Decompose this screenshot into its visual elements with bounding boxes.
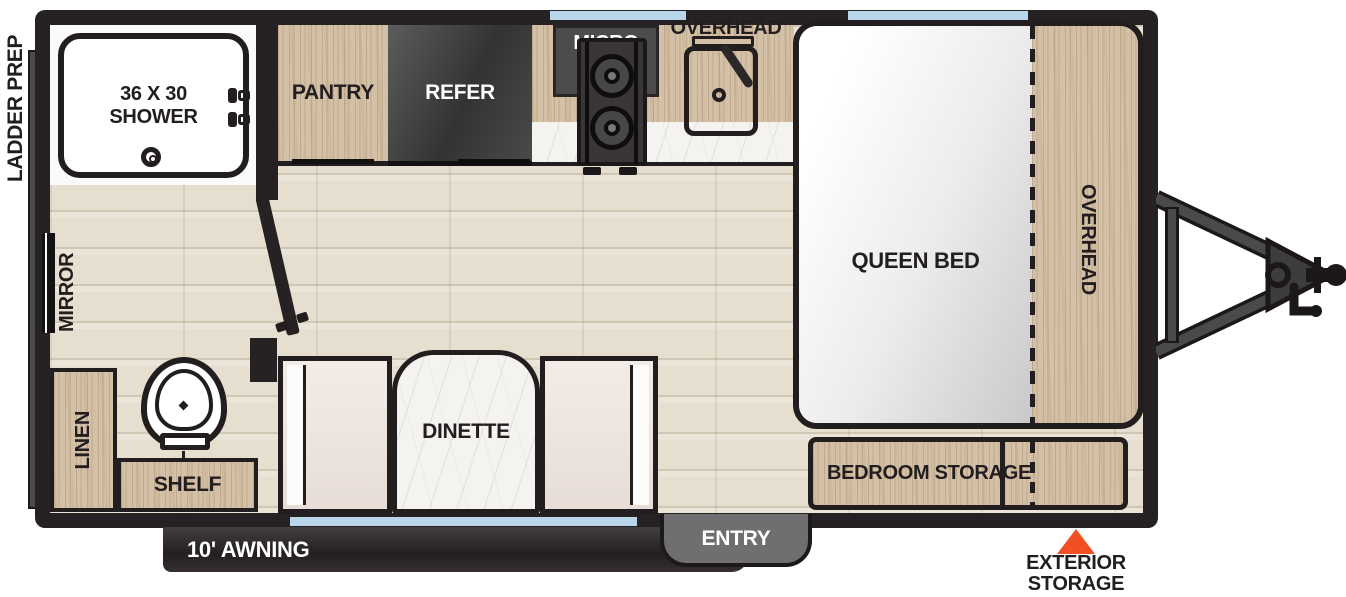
dinette-bench-left	[278, 356, 392, 514]
linen-cabinet: LINEN	[50, 368, 117, 512]
refer-label: REFER	[425, 81, 495, 105]
shower-valve-icon	[238, 90, 250, 101]
shelf-label: SHELF	[154, 473, 221, 497]
shelf-cabinet: SHELF	[117, 458, 258, 512]
floorplan-canvas: LADDER PREP 36 X 30 SHOWER MIRROR LINEN …	[0, 0, 1346, 597]
bench-cushion-strip	[630, 365, 649, 505]
bedroom-storage-label: BEDROOM STORAGE	[815, 462, 1043, 485]
refer-handle	[458, 159, 530, 165]
shower-valve-icon	[228, 112, 237, 127]
pantry-cabinet: PANTRY	[278, 25, 388, 166]
dinette-bench-right	[540, 356, 658, 514]
shower-size-label: 36 X 30	[120, 83, 187, 106]
mirror-label: MIRROR	[56, 236, 79, 332]
awning-label: 10' AWNING	[163, 537, 309, 563]
wall-stub	[250, 338, 277, 382]
bed-overhead-label: OVERHEAD	[1076, 184, 1099, 329]
mirror-icon	[42, 233, 55, 333]
queen-bed-mattress	[799, 26, 1032, 423]
exterior-storage-label: EXTERIOR STORAGE	[1006, 553, 1146, 595]
bedroom-window	[848, 11, 1028, 20]
ladder-prep-label: LADDER PREP	[4, 12, 28, 182]
entry-door-tab: ENTRY	[660, 514, 812, 567]
burner-icon	[590, 54, 634, 98]
pantry-label: PANTRY	[292, 81, 374, 105]
dinette-table: DINETTE	[392, 350, 540, 514]
cooktop-knob	[583, 167, 601, 175]
shower-valve-icon	[238, 114, 250, 125]
toilet-bowl-inner	[155, 369, 213, 431]
toilet-base	[160, 433, 210, 450]
bench-cushion-strip	[287, 365, 306, 505]
queen-bed-label: QUEEN BED	[799, 248, 1032, 274]
burner-icon	[590, 106, 634, 150]
shower-drain-icon	[141, 147, 161, 167]
pantry-handle	[292, 159, 374, 164]
cooktop-grate	[585, 42, 589, 164]
shower-label: SHOWER	[109, 106, 197, 129]
cooktop-knob	[619, 167, 637, 175]
exterior-storage-marker-icon	[1057, 529, 1095, 554]
cooktop-grate	[634, 42, 638, 164]
entry-label: ENTRY	[702, 527, 771, 551]
sink-drain-icon	[712, 88, 726, 102]
bedroom-storage: BEDROOM STORAGE	[808, 437, 1128, 510]
bed-unit: QUEEN BED OVERHEAD	[793, 20, 1144, 429]
bathroom-wall	[256, 25, 278, 200]
linen-label: LINEN	[72, 411, 95, 470]
dinette-window	[290, 517, 637, 526]
refrigerator: REFER	[388, 25, 532, 166]
hitch-icon	[1156, 185, 1346, 365]
shower-valve-icon	[228, 88, 237, 103]
bed-dashed-divider	[1030, 26, 1035, 423]
dinette-label: DINETTE	[422, 420, 510, 444]
